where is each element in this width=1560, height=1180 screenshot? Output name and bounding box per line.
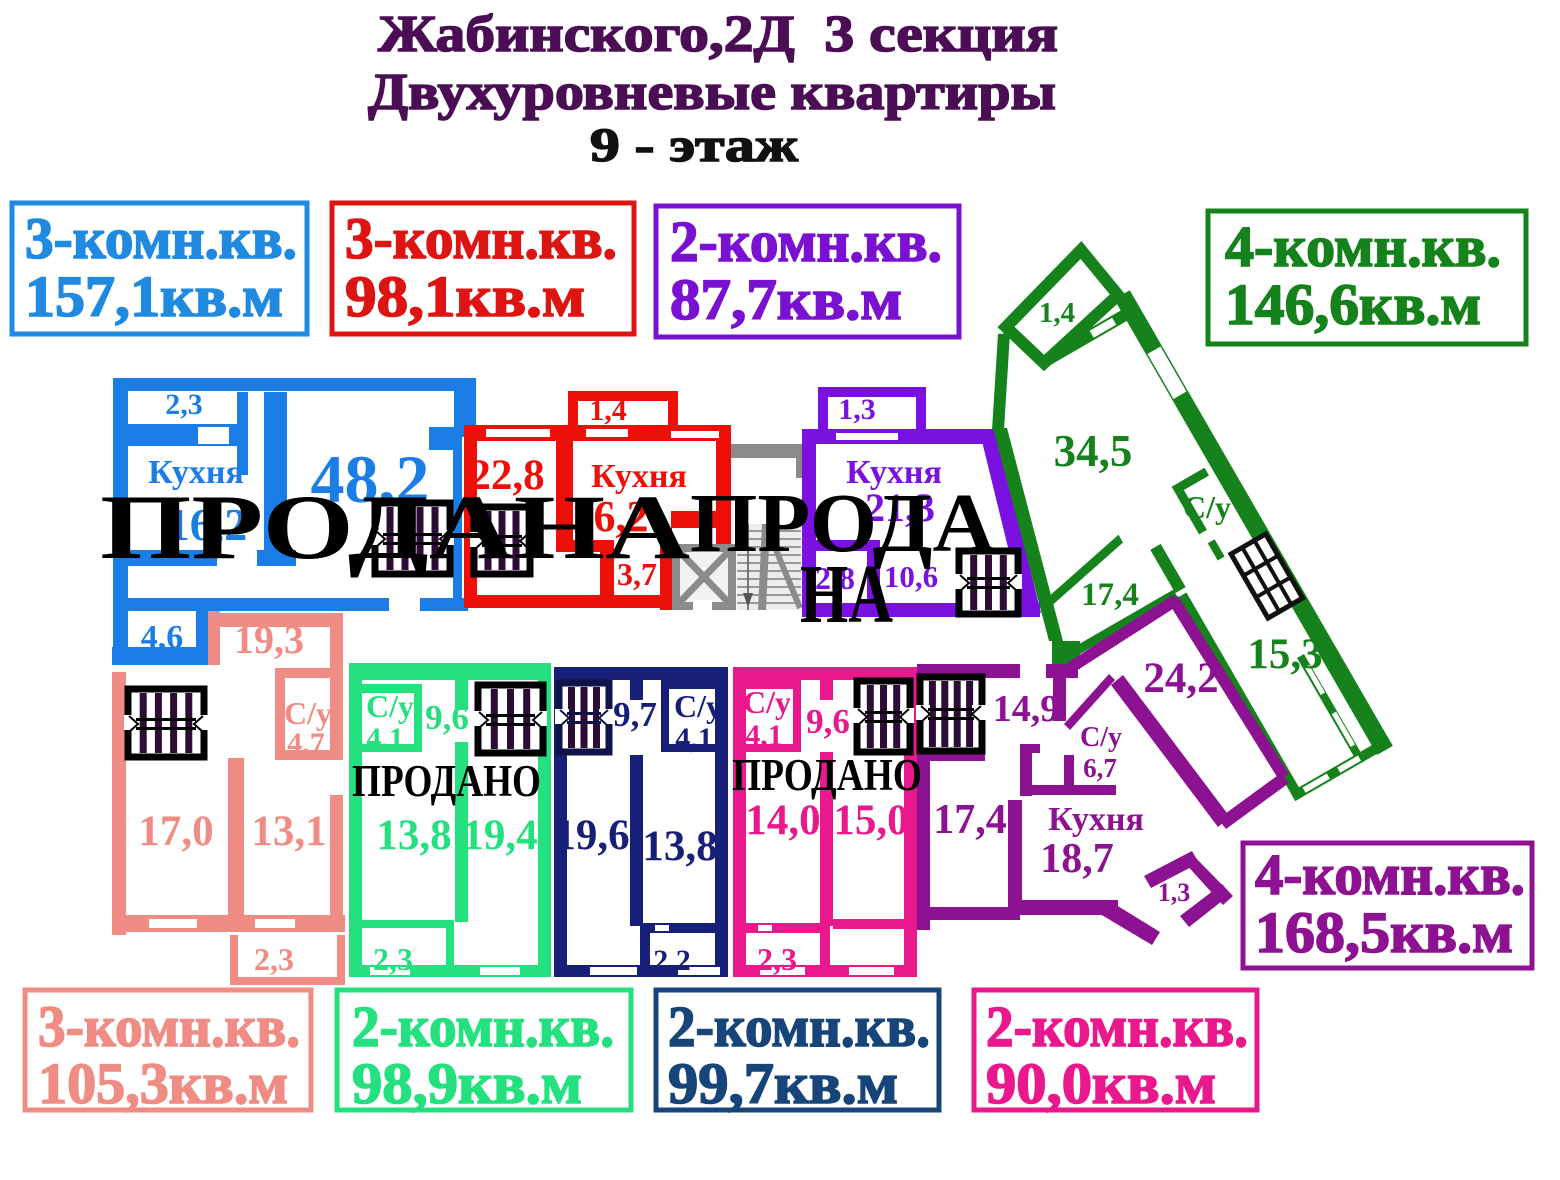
svg-text:4,1: 4,1 — [675, 722, 713, 755]
svg-text:2,3: 2,3 — [165, 388, 203, 421]
svg-text:4,1: 4,1 — [366, 722, 404, 755]
svg-text:19,6: 19,6 — [554, 812, 629, 859]
svg-text:87,7кв.м: 87,7кв.м — [670, 267, 902, 332]
svg-text:105,3кв.м: 105,3кв.м — [38, 1051, 288, 1116]
svg-text:98,1кв.м: 98,1кв.м — [345, 264, 585, 329]
svg-text:157,1кв.м: 157,1кв.м — [25, 264, 283, 329]
svg-text:С/у: С/у — [366, 688, 414, 724]
svg-text:2-комн.кв.: 2-комн.кв. — [352, 994, 614, 1059]
svg-text:ПРОДАНА: ПРОДАНА — [100, 476, 690, 578]
svg-text:2-комн.кв.: 2-комн.кв. — [986, 994, 1248, 1059]
svg-text:17,0: 17,0 — [138, 808, 213, 855]
svg-text:ПРОДАНО: ПРОДАНО — [352, 756, 541, 806]
svg-text:2,2: 2,2 — [653, 944, 691, 977]
svg-text:146,6кв.м: 146,6кв.м — [1225, 272, 1481, 337]
svg-text:Жабинского,2Д 3 секция: Жабинского,2Д 3 секция — [378, 6, 1058, 63]
svg-text:1,3: 1,3 — [838, 393, 876, 426]
svg-text:2-комн.кв.: 2-комн.кв. — [670, 209, 942, 274]
svg-text:13,8: 13,8 — [376, 812, 451, 859]
svg-text:НА: НА — [800, 548, 893, 641]
svg-text:4-комн.кв.: 4-комн.кв. — [1225, 214, 1501, 279]
svg-text:2,3: 2,3 — [757, 941, 797, 977]
svg-text:24,2: 24,2 — [1143, 655, 1218, 702]
svg-text:17,4: 17,4 — [1081, 577, 1139, 613]
svg-text:15,3: 15,3 — [1247, 631, 1322, 678]
svg-text:ПРОДАНО: ПРОДАНО — [732, 750, 922, 800]
svg-text:9 - этаж: 9 - этаж — [590, 119, 798, 172]
svg-text:С/у: С/у — [1080, 722, 1122, 753]
svg-text:3-комн.кв.: 3-комн.кв. — [38, 994, 300, 1059]
svg-text:168,5кв.м: 168,5кв.м — [1255, 900, 1513, 965]
svg-text:13,8: 13,8 — [642, 823, 717, 870]
svg-text:3-комн.кв.: 3-комн.кв. — [25, 206, 297, 271]
svg-text:34,5: 34,5 — [1054, 426, 1133, 476]
svg-text:1,3: 1,3 — [1158, 878, 1191, 907]
svg-text:14,9: 14,9 — [993, 688, 1060, 730]
svg-text:1,4: 1,4 — [1039, 297, 1075, 329]
svg-text:4,1: 4,1 — [745, 719, 783, 752]
svg-text:2-комн.кв.: 2-комн.кв. — [668, 994, 930, 1059]
svg-text:С/у: С/у — [674, 688, 722, 724]
svg-text:19,3: 19,3 — [234, 617, 304, 662]
svg-text:Кухня: Кухня — [1048, 801, 1144, 838]
svg-text:2,3: 2,3 — [254, 941, 294, 977]
svg-text:17,4: 17,4 — [933, 797, 1007, 843]
svg-text:98,9кв.м: 98,9кв.м — [352, 1051, 582, 1116]
svg-text:С/у: С/у — [743, 684, 791, 720]
svg-text:4,7: 4,7 — [287, 727, 325, 760]
svg-text:90,0кв.м: 90,0кв.м — [986, 1051, 1216, 1116]
svg-text:2,3: 2,3 — [373, 941, 413, 977]
svg-text:14,0: 14,0 — [745, 797, 820, 844]
svg-text:Двухуровневые квартиры: Двухуровневые квартиры — [368, 64, 1056, 121]
svg-text:1,4: 1,4 — [589, 394, 627, 427]
svg-text:13,1: 13,1 — [251, 808, 326, 855]
svg-text:9,6: 9,6 — [425, 698, 469, 737]
svg-text:6,7: 6,7 — [1083, 753, 1117, 783]
svg-text:С/у: С/у — [284, 695, 332, 731]
svg-text:С/у: С/у — [1183, 489, 1231, 525]
svg-text:4,6: 4,6 — [141, 619, 184, 656]
svg-text:15,0: 15,0 — [833, 797, 908, 844]
svg-text:9,7: 9,7 — [613, 695, 657, 734]
svg-text:18,7: 18,7 — [1040, 836, 1114, 882]
svg-text:99,7кв.м: 99,7кв.м — [668, 1051, 898, 1116]
svg-text:4-комн.кв.: 4-комн.кв. — [1255, 842, 1525, 907]
svg-text:3-комн.кв.: 3-комн.кв. — [345, 206, 617, 271]
svg-text:9,6: 9,6 — [806, 702, 850, 741]
svg-text:19,4: 19,4 — [462, 812, 537, 859]
